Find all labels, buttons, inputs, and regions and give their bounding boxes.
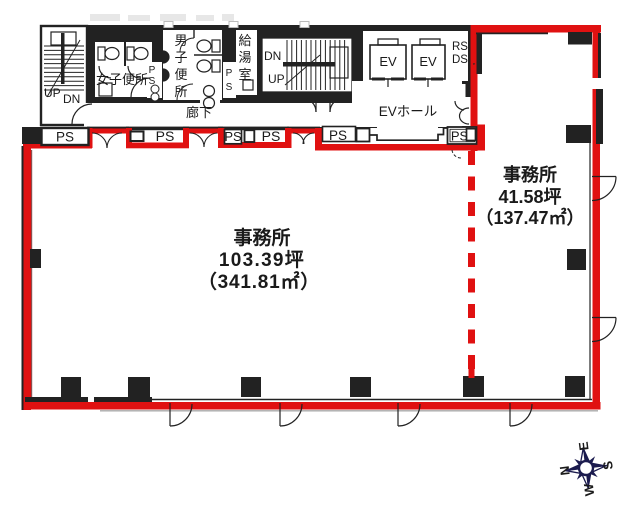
svg-text:DN: DN — [264, 49, 281, 63]
svg-text:（341.81㎡）: （341.81㎡） — [198, 270, 320, 293]
svg-text:EV: EV — [419, 54, 437, 69]
svg-text:P: P — [149, 65, 156, 76]
svg-text:103.39坪: 103.39坪 — [219, 249, 305, 271]
svg-text:PS: PS — [156, 128, 175, 144]
svg-text:湯: 湯 — [238, 50, 251, 65]
svg-text:N: N — [557, 465, 573, 476]
svg-text:女子便所: 女子便所 — [96, 72, 148, 87]
svg-text:子: 子 — [174, 50, 187, 65]
svg-text:UP: UP — [44, 86, 61, 100]
svg-text:DN: DN — [63, 92, 80, 106]
svg-text:給: 給 — [238, 33, 251, 48]
svg-text:所: 所 — [174, 84, 187, 99]
svg-text:PS: PS — [329, 128, 347, 143]
svg-text:DS: DS — [452, 54, 468, 66]
svg-text:事務所: 事務所 — [503, 164, 557, 185]
svg-text:室: 室 — [238, 67, 251, 82]
svg-text:廊下: 廊下 — [186, 105, 212, 120]
svg-text:RS: RS — [452, 41, 468, 53]
svg-text:UP: UP — [268, 72, 285, 86]
svg-text:EV: EV — [379, 54, 397, 69]
svg-text:（137.47㎡）: （137.47㎡） — [475, 207, 584, 228]
svg-text:EVホール: EVホール — [379, 104, 438, 119]
svg-text:便: 便 — [174, 67, 187, 82]
svg-text:PS: PS — [262, 128, 281, 144]
svg-text:41.58坪: 41.58坪 — [498, 187, 561, 207]
svg-text:事務所: 事務所 — [233, 226, 290, 249]
svg-text:男: 男 — [174, 33, 187, 48]
svg-text:S: S — [226, 82, 233, 93]
svg-text:PS: PS — [224, 129, 242, 144]
svg-text:P: P — [226, 68, 233, 79]
svg-text:PS: PS — [56, 130, 74, 145]
